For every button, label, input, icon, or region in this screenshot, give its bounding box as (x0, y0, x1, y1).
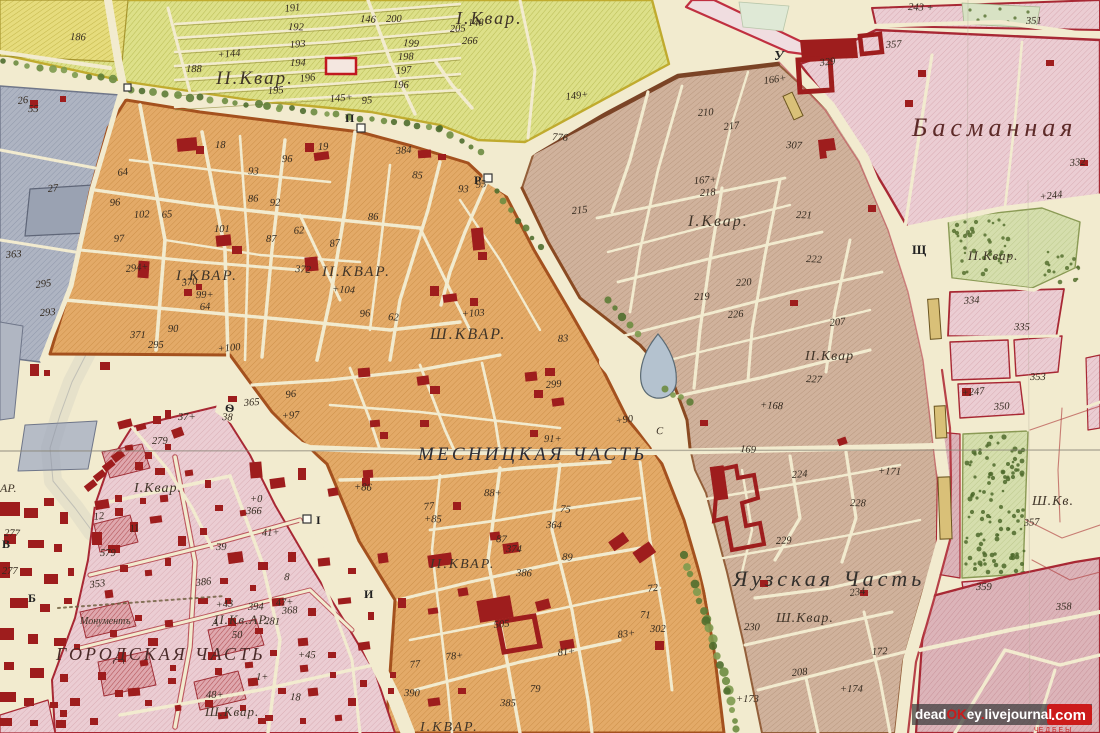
svg-text:11: 11 (129, 523, 140, 535)
svg-text:218: 218 (700, 187, 717, 199)
svg-text:353: 353 (1029, 372, 1046, 383)
svg-text:50: 50 (232, 630, 244, 641)
svg-text:193: 193 (289, 39, 306, 51)
svg-text:+144: +144 (217, 48, 241, 61)
svg-text:217: 217 (723, 120, 741, 133)
svg-text:75: 75 (560, 504, 571, 516)
svg-text:371: 371 (129, 330, 146, 341)
svg-text:384: 384 (394, 145, 412, 157)
svg-text:86: 86 (368, 212, 380, 223)
svg-text:І.Квар.: І.Квар. (133, 481, 182, 496)
svg-text:350: 350 (993, 401, 1011, 413)
svg-text:62: 62 (388, 312, 400, 324)
svg-text:229: 229 (776, 535, 793, 547)
svg-text:220: 220 (735, 277, 752, 289)
svg-text:197: 197 (395, 65, 412, 77)
svg-text:87: 87 (266, 234, 277, 245)
svg-text:234: 234 (849, 586, 867, 599)
svg-text:169: 169 (740, 444, 757, 456)
svg-text:221: 221 (796, 210, 812, 221)
svg-text:192: 192 (288, 22, 305, 33)
svg-text:332: 332 (1068, 157, 1086, 169)
svg-text:358: 358 (1055, 601, 1073, 613)
svg-text:90: 90 (168, 324, 180, 335)
svg-text:776: 776 (552, 132, 569, 144)
svg-text:П: П (345, 111, 355, 125)
svg-text:18: 18 (215, 140, 226, 151)
svg-text:41+: 41+ (262, 527, 280, 539)
svg-text:Б: Б (28, 591, 36, 605)
svg-text:93: 93 (248, 166, 259, 177)
svg-text:89: 89 (562, 552, 574, 564)
svg-text:226: 226 (727, 309, 744, 321)
svg-text:АР.: АР. (0, 481, 16, 495)
svg-text:Щ: Щ (912, 242, 927, 257)
svg-text:88+: 88+ (484, 488, 502, 499)
svg-text:+0: +0 (250, 494, 263, 505)
svg-text:81+: 81+ (557, 646, 576, 659)
svg-text:279: 279 (152, 436, 169, 447)
svg-text:91+: 91+ (544, 434, 562, 445)
svg-text:77: 77 (423, 501, 435, 513)
svg-text:83: 83 (557, 333, 568, 345)
svg-text:302: 302 (649, 624, 667, 635)
svg-text:+85: +85 (424, 514, 442, 525)
svg-text:Монументъ: Монументъ (79, 616, 131, 627)
svg-text:99+: 99+ (196, 290, 214, 301)
svg-text:+103: +103 (462, 308, 485, 320)
svg-text:97: 97 (114, 233, 126, 245)
svg-text:243 +: 243 + (908, 2, 934, 14)
svg-text:ІІ.Квар: ІІ.Квар (804, 349, 854, 364)
svg-text:334: 334 (963, 295, 981, 307)
svg-text:55: 55 (28, 104, 39, 115)
svg-text:219: 219 (694, 291, 711, 303)
svg-text:ІІ.Квар.: ІІ.Квар. (967, 248, 1018, 263)
svg-text:26: 26 (17, 95, 29, 107)
svg-text:386: 386 (515, 568, 533, 579)
svg-text:364: 364 (545, 520, 563, 532)
svg-text:365: 365 (242, 397, 259, 409)
svg-text:335: 335 (1013, 322, 1030, 333)
svg-text:366: 366 (245, 506, 263, 517)
svg-text:77: 77 (409, 659, 421, 671)
svg-text:И: И (364, 587, 374, 601)
svg-text:191: 191 (284, 2, 301, 15)
svg-text:200: 200 (386, 14, 403, 25)
svg-text:357: 357 (1023, 517, 1041, 529)
svg-text:ЧЕ Д Б Е Ы: ЧЕ Д Б Е Ы (1034, 727, 1071, 733)
svg-text:+168: +168 (760, 400, 784, 412)
svg-text:86: 86 (248, 194, 260, 205)
svg-text:188: 188 (186, 64, 203, 75)
svg-text:145+: 145+ (329, 92, 353, 105)
svg-text:172: 172 (872, 646, 889, 658)
svg-text:37+: 37+ (177, 412, 196, 423)
svg-text:12: 12 (93, 511, 105, 523)
svg-text:78+: 78+ (445, 650, 464, 663)
svg-text:215: 215 (571, 205, 588, 217)
svg-text:+86: +86 (354, 482, 373, 494)
svg-text:І: І (316, 513, 321, 527)
svg-text:199: 199 (403, 38, 420, 50)
svg-text:210: 210 (697, 107, 714, 119)
svg-text:195: 195 (268, 85, 284, 97)
svg-text:505: 505 (493, 619, 510, 631)
svg-text:102: 102 (134, 209, 151, 221)
svg-text:295: 295 (148, 340, 164, 351)
svg-text:386: 386 (194, 576, 213, 589)
svg-text:167+: 167+ (693, 174, 717, 187)
svg-text:370: 370 (180, 276, 199, 289)
svg-text:96: 96 (282, 154, 293, 165)
svg-text:ІІ.КВАР.: ІІ.КВАР. (429, 557, 495, 572)
svg-text:Ш.Кв.: Ш.Кв. (1031, 494, 1074, 509)
svg-text:329: 329 (818, 56, 837, 69)
svg-text:266: 266 (462, 36, 479, 47)
svg-text:Ш.КВАР.: Ш.КВАР. (429, 326, 506, 343)
svg-text:353: 353 (88, 578, 106, 591)
svg-text:І.КВАР.: І.КВАР. (419, 720, 479, 733)
svg-text:385: 385 (499, 698, 516, 709)
svg-text:295: 295 (35, 278, 52, 291)
svg-text:+174: +174 (840, 684, 864, 695)
svg-text:65: 65 (161, 209, 172, 221)
svg-text:+104: +104 (332, 284, 356, 297)
svg-text:83+: 83+ (617, 628, 636, 641)
svg-text:146: 146 (360, 14, 377, 26)
svg-text:Басманная: Басманная (911, 113, 1077, 142)
svg-text:64: 64 (200, 301, 212, 313)
svg-text:+171: +171 (878, 466, 901, 478)
svg-text:+43: +43 (215, 598, 234, 611)
svg-text:363: 363 (4, 249, 22, 261)
svg-text:227: 227 (806, 374, 823, 386)
svg-text:198: 198 (398, 52, 415, 63)
svg-text:299: 299 (545, 379, 562, 391)
svg-text:207: 207 (829, 316, 847, 329)
svg-text:228: 228 (850, 498, 867, 509)
svg-text:+173: +173 (736, 694, 759, 705)
svg-text:ІІ.Кв.АР.: ІІ.Кв.АР. (213, 612, 270, 627)
svg-text:І.Квар.: І.Квар. (687, 213, 749, 230)
svg-text:18: 18 (290, 692, 302, 704)
svg-text:93: 93 (458, 184, 469, 195)
svg-text:38: 38 (221, 412, 234, 424)
svg-text:79: 79 (530, 684, 541, 695)
svg-text:148: 148 (468, 18, 485, 29)
svg-text:230: 230 (744, 622, 761, 633)
svg-text:294+: 294+ (125, 262, 149, 275)
svg-text:48+: 48+ (206, 690, 224, 701)
svg-text:Яузская Часть: Яузская Часть (732, 566, 925, 591)
svg-text:ГОРОДСКАЯ ЧАСТЬ: ГОРОДСКАЯ ЧАСТЬ (55, 644, 266, 664)
svg-text:222: 222 (806, 254, 823, 266)
svg-text:95: 95 (361, 95, 372, 107)
svg-text:96: 96 (109, 197, 121, 209)
svg-text:27: 27 (47, 183, 59, 195)
svg-text:+247: +247 (961, 386, 985, 399)
svg-text:deadOKey.livejournal: deadOKey.livejournal (915, 707, 1052, 722)
svg-text:ІІ.КВАР.: ІІ.КВАР. (321, 264, 391, 280)
svg-text:1+: 1+ (256, 672, 268, 683)
svg-text:351: 351 (1025, 16, 1042, 27)
svg-text:+45: +45 (298, 650, 316, 661)
svg-text:96: 96 (359, 308, 371, 320)
svg-text:394: 394 (247, 602, 265, 613)
svg-text:277: 277 (2, 566, 19, 577)
svg-text:Ш.Квар.: Ш.Квар. (775, 611, 834, 626)
svg-text:368: 368 (281, 605, 299, 617)
svg-text:МЕСНИЦКАЯ ЧАСТЬ: МЕСНИЦКАЯ ЧАСТЬ (417, 444, 647, 465)
svg-text:85: 85 (412, 170, 423, 182)
svg-text:372: 372 (294, 264, 312, 276)
svg-text:579: 579 (100, 548, 117, 559)
svg-text:277: 277 (4, 528, 21, 540)
svg-text:Ш.Квар.: Ш.Квар. (204, 704, 259, 719)
svg-text:.com: .com (1051, 707, 1086, 724)
svg-text:А: А (211, 618, 219, 629)
svg-text:92: 92 (270, 198, 282, 209)
svg-text:62: 62 (293, 225, 305, 237)
svg-text:359: 359 (975, 582, 993, 593)
svg-text:390: 390 (403, 688, 421, 699)
svg-text:208: 208 (791, 667, 808, 679)
svg-text:101: 101 (214, 224, 230, 235)
svg-text:205: 205 (450, 23, 466, 35)
svg-text:196: 196 (299, 72, 317, 85)
svg-text:374: 374 (505, 544, 523, 555)
svg-text:186: 186 (70, 32, 87, 43)
svg-text:224: 224 (791, 469, 808, 481)
svg-text:293: 293 (39, 307, 55, 319)
svg-text:19: 19 (318, 142, 330, 153)
svg-text:39: 39 (215, 542, 227, 553)
svg-text:+100: +100 (217, 342, 241, 355)
svg-text:95: 95 (475, 179, 487, 191)
svg-text:357: 357 (885, 39, 903, 51)
svg-text:196: 196 (393, 80, 410, 91)
svg-text:194: 194 (290, 58, 307, 69)
svg-text:307: 307 (785, 140, 803, 152)
svg-text:281: 281 (264, 616, 280, 628)
svg-text:71: 71 (640, 610, 651, 621)
svg-text:+97: +97 (282, 410, 301, 422)
